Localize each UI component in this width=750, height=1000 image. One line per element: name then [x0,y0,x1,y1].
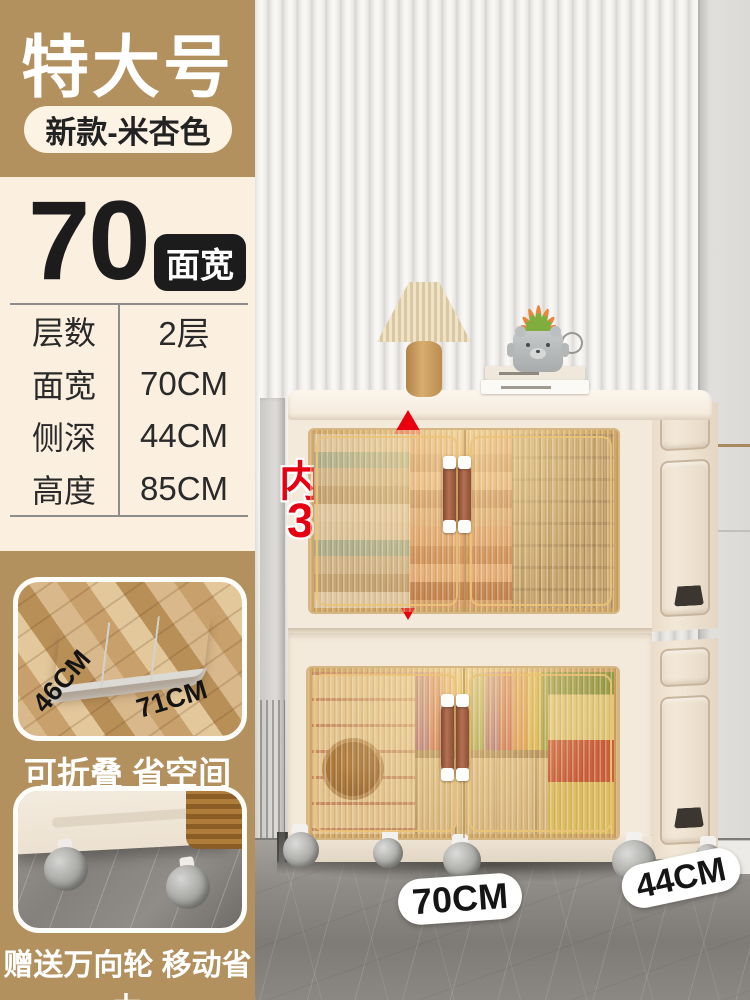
caster-wheel [443,834,481,878]
wheels-caption: 赠送万向轮 移动省力 [0,940,255,1000]
handle-clip [441,694,454,707]
bear-planter [513,331,563,372]
side-handle-hole [674,807,704,829]
width-dimension-tag: 70CM [397,872,524,927]
handle-clip [441,768,454,781]
room-photo: 内部高 38CM 70CM 44CM [255,0,750,1000]
spec-row: 侧深 44CM [10,410,248,463]
size-banner: 特大号 新款-米杏色 [0,0,255,177]
cabinet-top-lid [288,390,712,420]
spec-panel: 70 面宽 层数 2层 面宽 70CM 侧深 44CM 高度 85CM [0,177,255,551]
door-handle-strap [456,702,469,774]
side-handle-hole [674,585,704,607]
wicker-basket [186,791,242,849]
variant-badge: 新款-米杏色 [24,106,232,153]
tier2-door [308,668,618,838]
caster-wheel [373,830,403,868]
door-handle-strap [443,462,456,528]
handle-clip [458,520,471,533]
book [481,380,589,394]
tier1-door [310,430,618,612]
spec-table: 层数 2层 面宽 70CM 侧深 44CM 高度 85CM [10,303,248,517]
spec-row: 面宽 70CM [10,358,248,411]
tier-seam [288,628,652,633]
caster-wheel [283,824,319,870]
handle-clip [458,456,471,469]
width-number: 70 [28,185,149,297]
radiator-fins [260,700,285,840]
foldable-feature-photo: 46CM 71CM [13,577,247,741]
handle-clip [443,456,456,469]
wheels-feature-photo [13,786,247,933]
cabinet-side-panel-top [652,402,718,631]
size-title: 特大号 [0,12,255,111]
width-unit-badge: 面宽 [154,234,246,291]
lamp-base [406,341,442,397]
door-handle-strap [441,702,454,774]
handle-clip [456,694,469,707]
handle-clip [443,520,456,533]
spec-row: 层数 2层 [10,305,248,358]
product-detail-image: 内部高 38CM 70CM 44CM 特大号 新款-米杏色 70 面宽 层数 2… [0,0,750,1000]
door-handle-strap [458,462,471,528]
info-sidebar: 特大号 新款-米杏色 70 面宽 层数 2层 面宽 70CM 侧深 44CM [0,0,255,1000]
spec-row: 高度 85CM [10,463,248,516]
cabinet-side-panel-bottom [652,638,718,859]
feature-section: 46CM 71CM 可折叠 省空间 赠送万向轮 移动省力 [0,551,255,1000]
handle-clip [456,768,469,781]
